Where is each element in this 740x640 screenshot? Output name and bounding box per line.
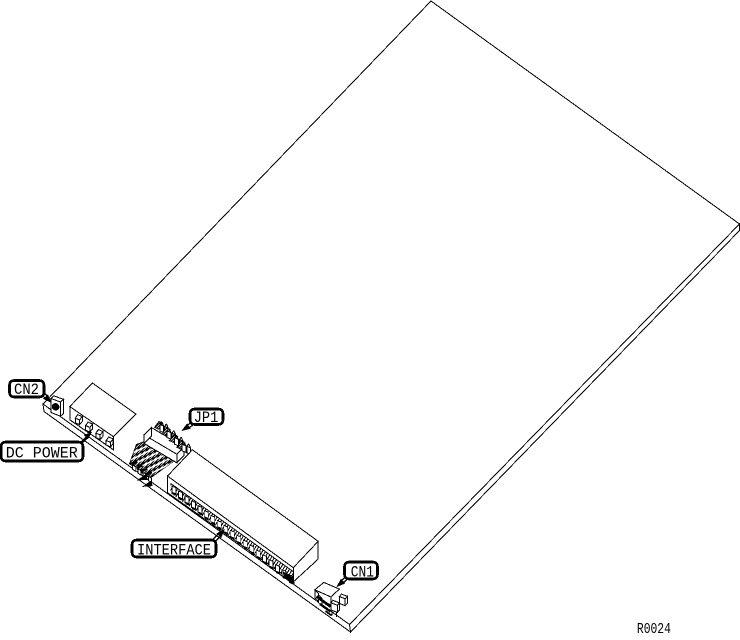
svg-text:CN2: CN2	[14, 381, 39, 399]
svg-text:DC POWER: DC POWER	[6, 445, 78, 463]
svg-text:R0024: R0024	[637, 621, 671, 638]
svg-text:INTERFACE: INTERFACE	[137, 541, 211, 559]
svg-text:JP1: JP1	[194, 409, 219, 427]
svg-text:CN1: CN1	[351, 563, 374, 581]
